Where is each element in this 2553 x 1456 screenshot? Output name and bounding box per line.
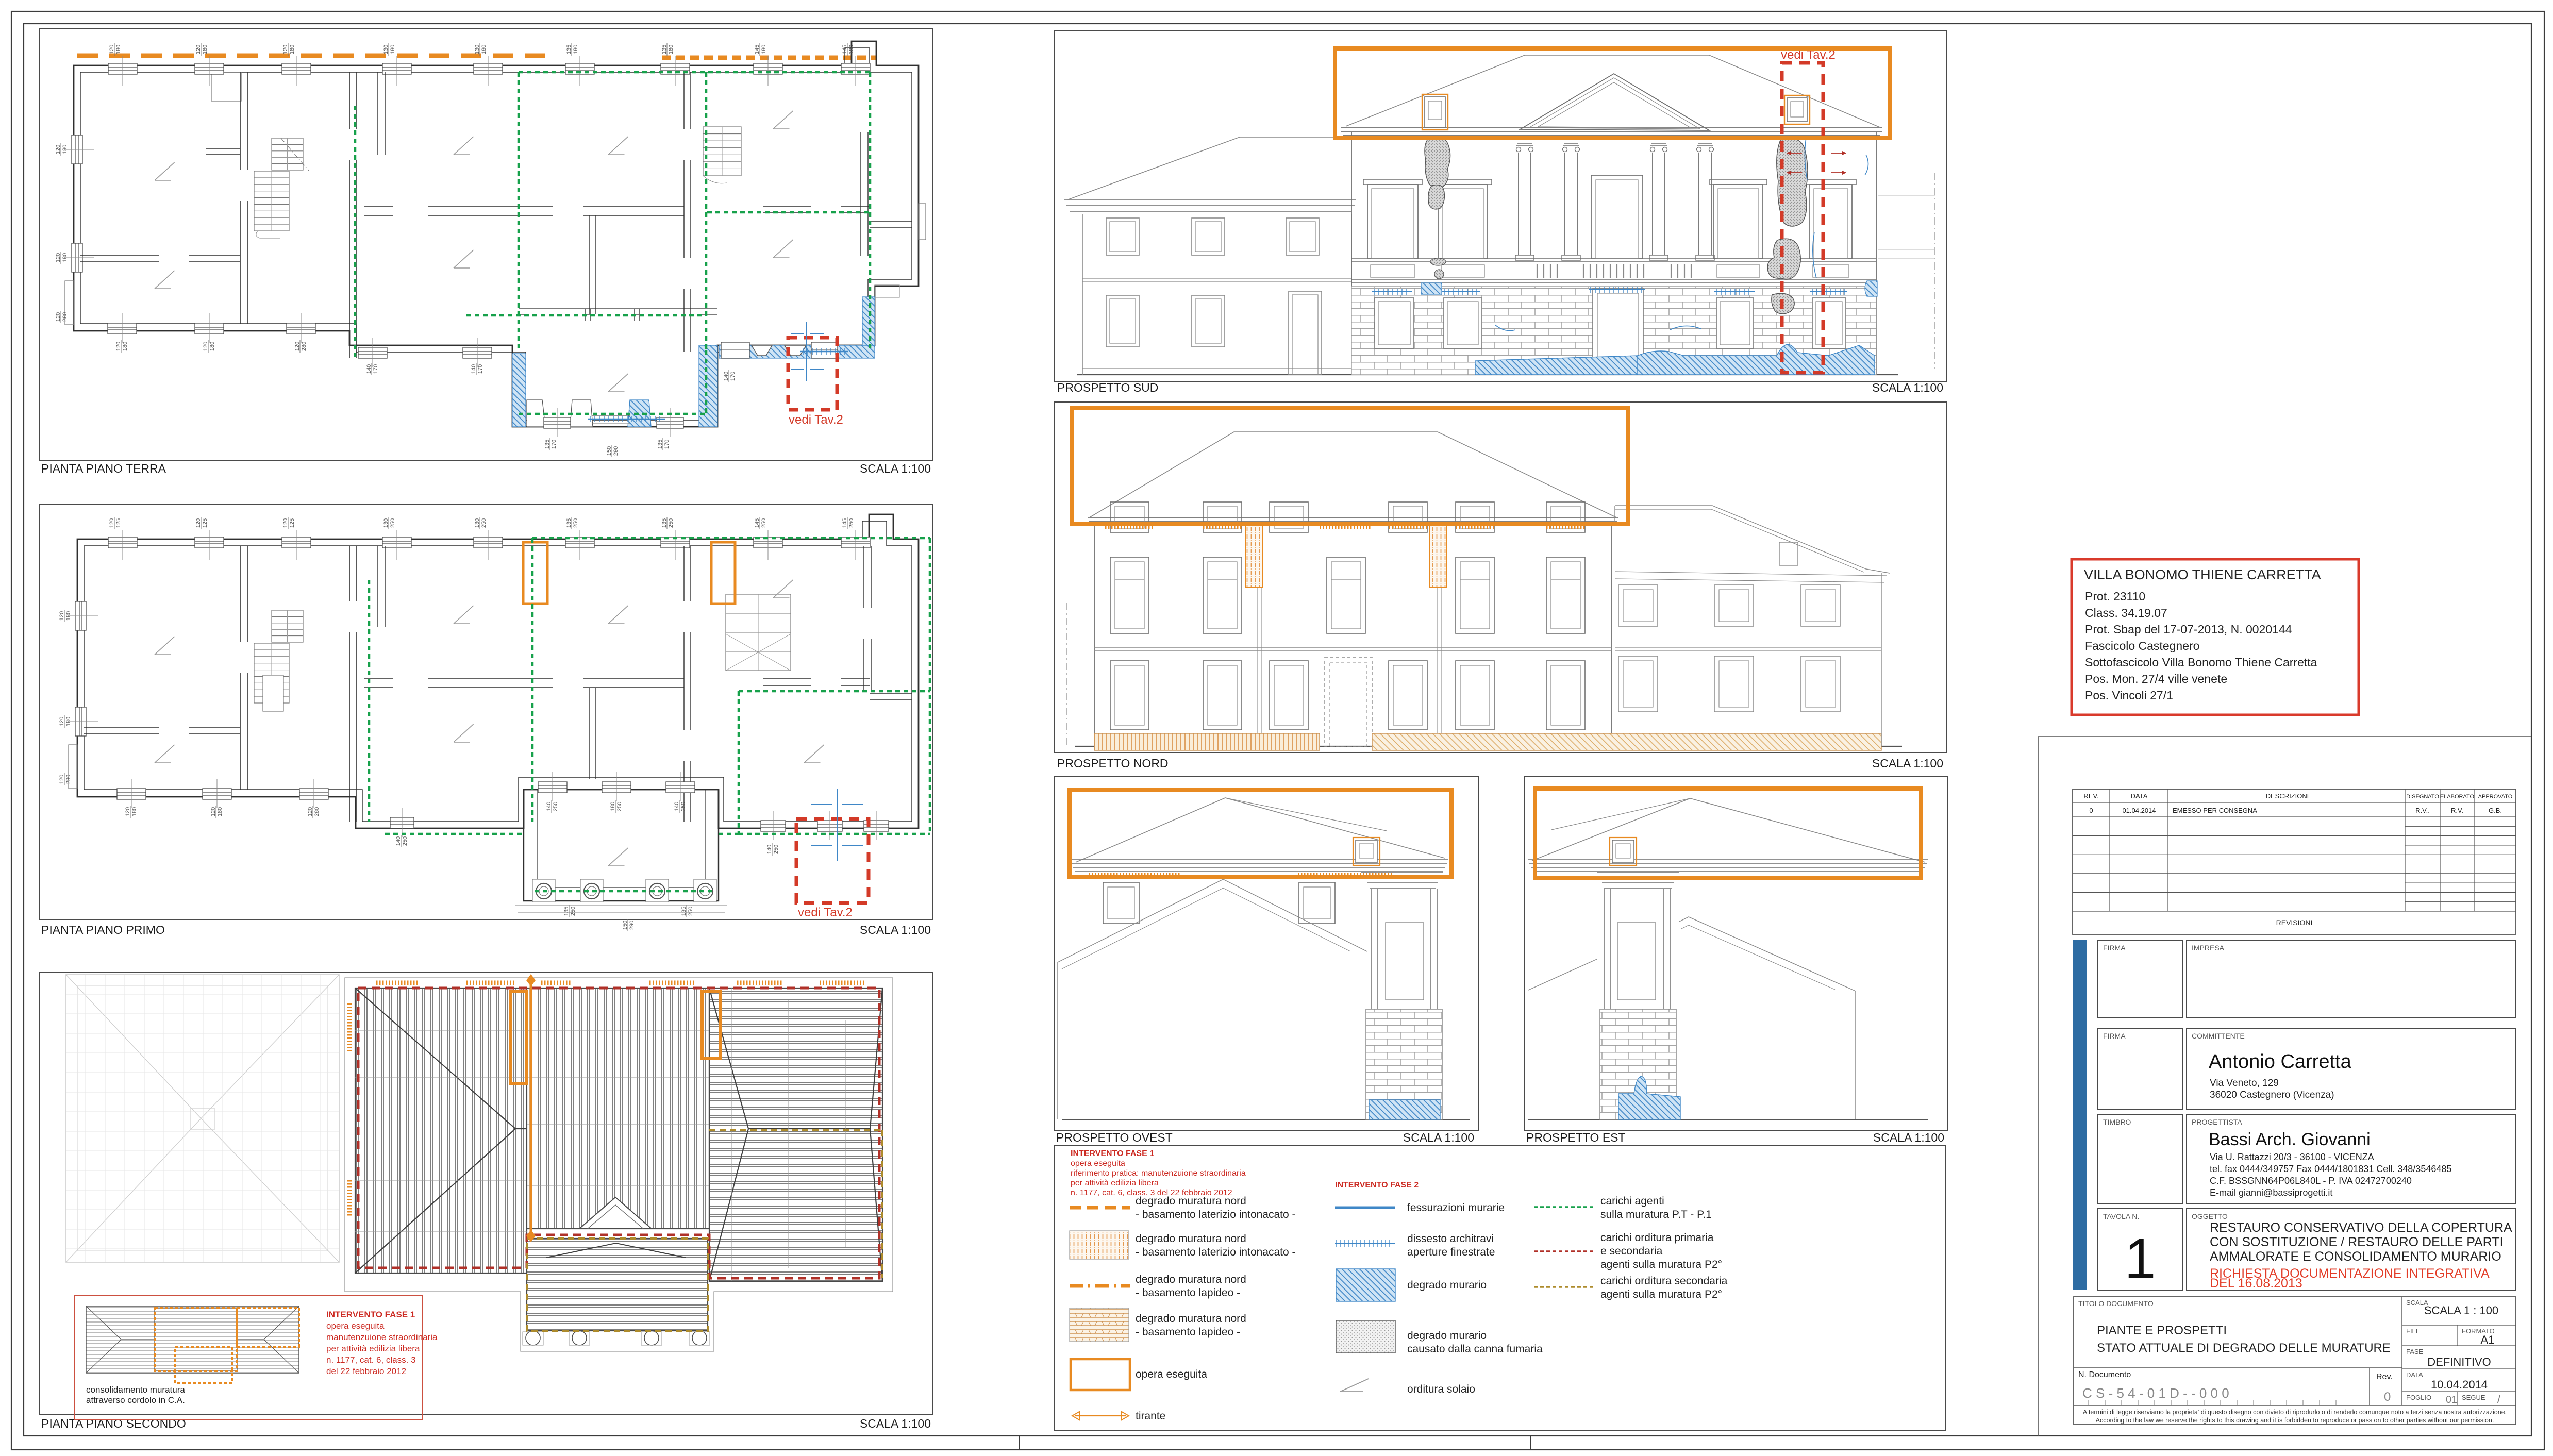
svg-text:250: 250 [481,518,487,528]
svg-text:120: 120 [115,342,122,351]
svg-text:R.V.: R.V. [2451,807,2463,814]
svg-text:135: 135 [566,518,572,528]
svg-text:IMPRESA: IMPRESA [2192,944,2225,952]
svg-text:e secondaria: e secondaria [1600,1245,1663,1257]
svg-text:n. 1177, cat. 6, class. 3: n. 1177, cat. 6, class. 3 [326,1355,416,1365]
svg-text:120: 120 [282,45,289,54]
svg-text:120: 120 [282,518,289,528]
svg-text:180: 180 [761,45,767,54]
svg-text:PROSPETTO OVEST: PROSPETTO OVEST [1056,1131,1173,1144]
svg-text:INTERVENTO FASE 1: INTERVENTO FASE 1 [326,1310,415,1319]
svg-text:REVISIONI: REVISIONI [2276,918,2313,927]
svg-text:250: 250 [616,802,623,811]
svg-text:dissesto architravi: dissesto architravi [1407,1233,1494,1245]
svg-text:vedi Tav.2: vedi Tav.2 [789,413,843,427]
svg-text:FILE: FILE [2406,1327,2421,1335]
svg-text:PIANTA PIANO PRIMO: PIANTA PIANO PRIMO [41,923,165,936]
svg-text:Rev.: Rev. [2376,1373,2393,1381]
svg-text:145: 145 [754,45,760,54]
svg-text:TITOLO DOCUMENTO: TITOLO DOCUMENTO [2078,1299,2154,1308]
svg-text:PIANTA PIANO SECONDO: PIANTA PIANO SECONDO [41,1417,186,1430]
svg-text:C S - 5 4 - 0 1 D - - 0 0 0: C S - 5 4 - 0 1 D - - 0 0 0 [2082,1385,2229,1401]
svg-text:- basamento lapideo -: - basamento lapideo - [1136,1326,1240,1338]
svg-text:180: 180 [62,253,68,262]
svg-text:per attività edilizia libera: per attività edilizia libera [1071,1179,1159,1187]
svg-text:tel. fax 0444/349757 Fax 0444/: tel. fax 0444/349757 Fax 0444/1801831 Ce… [2210,1164,2451,1174]
svg-text:145: 145 [842,45,848,54]
svg-text:125: 125 [289,518,295,528]
svg-text:250: 250 [761,518,767,528]
svg-text:manutenzuione straordinaria: manutenzuione straordinaria [326,1332,438,1342]
svg-text:tirante: tirante [1136,1410,1165,1422]
svg-text:SCALA 1:100: SCALA 1:100 [1872,381,1943,394]
svg-text:180: 180 [289,45,295,54]
svg-text:170: 170 [477,364,483,374]
svg-text:DEL 16.08.2013: DEL 16.08.2013 [2210,1276,2302,1291]
svg-text:FASE: FASE [2406,1348,2424,1355]
svg-text:fessurazioni murarie: fessurazioni murarie [1407,1202,1505,1214]
svg-text:FIRMA: FIRMA [2103,944,2126,952]
svg-text:250: 250 [688,907,694,916]
svg-text:OGGETTO: OGGETTO [2192,1212,2228,1220]
svg-text:attraverso cordolo in C.A.: attraverso cordolo in C.A. [86,1395,185,1405]
svg-text:Via Veneto, 129: Via Veneto, 129 [2210,1078,2279,1089]
svg-text:290: 290 [629,921,635,930]
svg-text:250: 250 [390,518,396,528]
svg-text:135: 135 [661,45,668,54]
svg-text:degrado muratura nord: degrado muratura nord [1136,1313,1246,1325]
svg-text:N. Documento: N. Documento [2078,1370,2131,1379]
svg-text:135: 135 [544,440,550,449]
svg-text:120: 120 [125,807,131,816]
svg-text:120: 120 [55,145,61,154]
svg-text:140: 140 [471,364,477,374]
svg-text:Antonio Carretta: Antonio Carretta [2209,1051,2352,1073]
svg-text:PROSPETTO EST: PROSPETTO EST [1526,1131,1626,1144]
svg-text:/: / [2497,1393,2501,1405]
svg-text:120: 120 [59,775,65,784]
svg-text:125: 125 [115,518,122,528]
svg-text:vedi Tav.2: vedi Tav.2 [798,906,853,919]
svg-text:- basamento laterizio intonaca: - basamento laterizio intonacato - [1136,1209,1296,1220]
svg-text:ELABORATO: ELABORATO [2440,794,2475,800]
svg-text:0: 0 [2384,1390,2391,1404]
svg-text:130: 130 [474,518,480,528]
svg-text:per attività edilizia libera: per attività edilizia libera [326,1344,420,1353]
svg-text:Pos. Vincoli 27/1: Pos. Vincoli 27/1 [2085,689,2173,702]
svg-text:TAVOLA N.: TAVOLA N. [2103,1212,2139,1220]
svg-text:PIANTA PIANO TERRA: PIANTA PIANO TERRA [41,462,166,475]
svg-text:130: 130 [474,45,480,54]
svg-text:180: 180 [217,807,223,816]
svg-text:SCALA 1:100: SCALA 1:100 [1403,1131,1474,1144]
svg-text:SEGUE: SEGUE [2462,1394,2485,1401]
svg-text:degrado murario: degrado murario [1407,1330,1487,1342]
svg-text:120: 120 [59,611,65,621]
svg-text:130: 130 [383,45,389,54]
svg-text:SCALA 1:100: SCALA 1:100 [860,923,931,936]
svg-text:125: 125 [202,518,208,528]
svg-text:EMESSO PER CONSEGNA: EMESSO PER CONSEGNA [2173,807,2257,814]
svg-text:140: 140 [674,802,680,811]
svg-text:180: 180 [62,145,68,154]
svg-text:140: 140 [766,845,773,854]
svg-text:150: 150 [622,921,628,930]
svg-text:FOGLIO: FOGLIO [2406,1394,2431,1401]
svg-text:orditura solaio: orditura solaio [1407,1383,1475,1395]
svg-text:135: 135 [657,440,663,449]
svg-text:Prot. 23110: Prot. 23110 [2085,590,2145,603]
svg-text:sulla muratura P.T - P.1: sulla muratura P.T - P.1 [1600,1209,1712,1220]
svg-text:REV.: REV. [2083,792,2098,800]
svg-text:RESTAURO CONSERVATIVO DELLA CO: RESTAURO CONSERVATIVO DELLA COPERTURA [2210,1220,2512,1235]
svg-text:STATO ATTUALE DI DEGRADO DELLE: STATO ATTUALE DI DEGRADO DELLE MURATURE [2097,1341,2391,1355]
svg-text:120: 120 [109,45,115,54]
svg-text:VILLA BONOMO THIENE CARRETTA: VILLA BONOMO THIENE CARRETTA [2084,567,2321,582]
svg-text:degrado muratura nord: degrado muratura nord [1136,1233,1246,1245]
svg-text:140: 140 [723,372,729,381]
svg-text:180: 180 [848,45,855,54]
svg-text:145: 145 [754,518,760,528]
svg-text:120: 120 [203,342,209,351]
svg-text:FIRMA: FIRMA [2103,1032,2126,1040]
svg-text:170: 170 [664,440,670,449]
svg-text:130: 130 [383,518,389,528]
svg-text:Bassi Arch. Giovanni: Bassi Arch. Giovanni [2209,1130,2371,1149]
svg-text:SCALA 1:100: SCALA 1:100 [860,1417,931,1430]
svg-text:290: 290 [613,446,619,456]
svg-text:riferimento pratica: manutenzu: riferimento pratica: manutenzuione strao… [1071,1169,1246,1178]
svg-text:10.04.2014: 10.04.2014 [2431,1378,2488,1391]
svg-text:150: 150 [606,446,612,456]
svg-text:135: 135 [566,45,572,54]
svg-text:PROGETTISTA: PROGETTISTA [2192,1118,2242,1126]
svg-text:120: 120 [195,518,202,528]
svg-text:PIANTE E PROSPETTI: PIANTE E PROSPETTI [2097,1324,2227,1337]
svg-text:250: 250 [402,836,408,846]
svg-text:140: 140 [366,364,372,374]
svg-text:carichi orditura primaria: carichi orditura primaria [1600,1232,1714,1244]
svg-text:Prot. Sbap del 17-07-2013, N.: Prot. Sbap del 17-07-2013, N. 0020144 [2085,623,2292,636]
svg-text:280: 280 [62,312,68,322]
svg-text:agenti sulla muratura P2°: agenti sulla muratura P2° [1600,1259,1722,1270]
svg-text:01: 01 [2446,1394,2457,1405]
svg-text:180: 180 [115,45,122,54]
svg-text:01.04.2014: 01.04.2014 [2122,807,2156,814]
svg-text:E-mail gianni@bassiprogetti.it: E-mail gianni@bassiprogetti.it [2210,1187,2332,1198]
svg-text:180: 180 [122,342,128,351]
svg-text:del 22 febbraio 2012: del 22 febbraio 2012 [326,1366,406,1376]
svg-text:PROSPETTO SUD: PROSPETTO SUD [1057,381,1158,394]
svg-text:INTERVENTO FASE 1: INTERVENTO FASE 1 [1071,1149,1154,1158]
svg-text:- basamento laterizio intonaca: - basamento laterizio intonacato - [1136,1246,1296,1258]
svg-text:DISEGNATO: DISEGNATO [2406,794,2439,800]
svg-text:DATA: DATA [2131,792,2148,800]
svg-text:C.F. BSSGNN64P06L840L - P. IV: C.F. BSSGNN64P06L840L - P. IVA 024727002… [2210,1176,2412,1186]
svg-text:180: 180 [481,45,487,54]
svg-text:250: 250 [668,518,674,528]
svg-text:causato dalla canna fumaria: causato dalla canna fumaria [1407,1343,1543,1355]
svg-text:135: 135 [661,518,668,528]
svg-text:G.B.: G.B. [2489,807,2502,814]
svg-text:Fascicolo Castegnero: Fascicolo Castegnero [2085,639,2199,652]
svg-text:180: 180 [65,611,72,621]
svg-text:135: 135 [563,907,570,916]
svg-text:120: 120 [307,807,313,816]
svg-text:R.V..: R.V.. [2415,807,2430,814]
svg-text:opera eseguita: opera eseguita [1136,1368,1207,1380]
svg-text:aperture finestrate: aperture finestrate [1407,1246,1495,1258]
svg-text:INTERVENTO FASE 2: INTERVENTO FASE 2 [1335,1181,1419,1190]
svg-text:250: 250 [848,518,855,528]
svg-text:180: 180 [610,802,616,811]
svg-text:carichi agenti: carichi agenti [1600,1195,1664,1207]
svg-text:250: 250 [680,802,687,811]
svg-text:degrado muratura nord: degrado muratura nord [1136,1195,1246,1207]
svg-text:SCALA 1:100: SCALA 1:100 [860,462,931,475]
svg-text:Sottofascicolo Villa Bonomo Th: Sottofascicolo Villa Bonomo Thiene Carre… [2085,656,2317,669]
svg-text:CON SOSTITUZIONE / RESTAURO DE: CON SOSTITUZIONE / RESTAURO DELLE PARTI [2210,1235,2504,1249]
svg-text:degrado muratura nord: degrado muratura nord [1136,1274,1246,1285]
svg-text:consolidamento muratura: consolidamento muratura [86,1385,185,1395]
svg-text:opera eseguita: opera eseguita [1071,1159,1125,1168]
svg-text:120: 120 [294,342,301,351]
svg-text:degrado murario: degrado murario [1407,1279,1487,1291]
svg-text:170: 170 [373,364,379,374]
svg-text:140: 140 [395,836,402,846]
svg-text:180: 180 [202,45,208,54]
svg-text:250: 250 [573,518,579,528]
svg-text:180: 180 [390,45,396,54]
svg-text:opera eseguita: opera eseguita [326,1321,385,1331]
svg-text:A1: A1 [2481,1333,2495,1346]
svg-text:250: 250 [570,907,576,916]
svg-text:180: 180 [668,45,674,54]
svg-text:120: 120 [59,717,65,726]
svg-text:250: 250 [773,845,779,854]
svg-text:36020 Castegnero (Vicenza): 36020 Castegnero (Vicenza) [2210,1090,2334,1100]
svg-text:DATA: DATA [2406,1371,2423,1379]
svg-text:1: 1 [2124,1227,2156,1291]
svg-text:Class. 34.19.07: Class. 34.19.07 [2085,606,2167,620]
svg-text:120: 120 [210,807,216,816]
svg-text:120: 120 [109,518,115,528]
svg-text:170: 170 [551,440,557,449]
svg-text:250: 250 [553,802,559,811]
svg-text:135: 135 [681,907,687,916]
svg-text:140: 140 [546,802,552,811]
svg-text:0: 0 [2089,807,2093,814]
svg-text:carichi orditura secondaria: carichi orditura secondaria [1600,1275,1728,1287]
svg-text:AMMALORATE E CONSOLIDAMENTO MU: AMMALORATE E CONSOLIDAMENTO MURARIO [2210,1249,2501,1264]
svg-text:DESCRIZIONE: DESCRIZIONE [2266,792,2312,800]
svg-text:120: 120 [55,312,61,322]
svg-text:180: 180 [65,717,72,726]
svg-text:280: 280 [301,342,307,351]
svg-text:120: 120 [55,253,61,262]
svg-text:APPROVATO: APPROVATO [2478,794,2513,800]
svg-text:COMMITTENTE: COMMITTENTE [2192,1032,2245,1040]
svg-text:SCALA 1:100: SCALA 1:100 [1872,757,1943,770]
svg-text:Via U. Rattazzi 20/3 - 36100: Via U. Rattazzi 20/3 - 36100 - VICENZA [2210,1152,2374,1162]
svg-text:170: 170 [730,372,736,381]
svg-text:- basamento lapideo -: - basamento lapideo - [1136,1287,1240,1299]
svg-text:145: 145 [842,518,848,528]
svg-text:PROSPETTO NORD: PROSPETTO NORD [1057,757,1169,770]
svg-text:280: 280 [65,775,72,784]
svg-text:120: 120 [195,45,202,54]
svg-text:180: 180 [131,807,138,816]
svg-text:A termini di legge riserviamo: A termini di legge riserviamo la proprie… [2083,1409,2507,1416]
svg-text:agenti sulla muratura P2°: agenti sulla muratura P2° [1600,1288,1722,1300]
svg-text:Pos. Mon. 27/4 ville venete: Pos. Mon. 27/4 ville venete [2085,672,2227,685]
svg-text:SCALA 1:100: SCALA 1:100 [1873,1131,1944,1144]
svg-text:TIMBRO: TIMBRO [2103,1118,2131,1126]
svg-text:DEFINITIVO: DEFINITIVO [2427,1355,2491,1368]
svg-text:180: 180 [573,45,579,54]
svg-text:280: 280 [314,807,320,816]
svg-text:SCALA 1 : 100: SCALA 1 : 100 [2424,1304,2498,1317]
svg-text:180: 180 [209,342,215,351]
svg-text:According to the law we reserv: According to the law we reserve the righ… [2096,1417,2494,1424]
